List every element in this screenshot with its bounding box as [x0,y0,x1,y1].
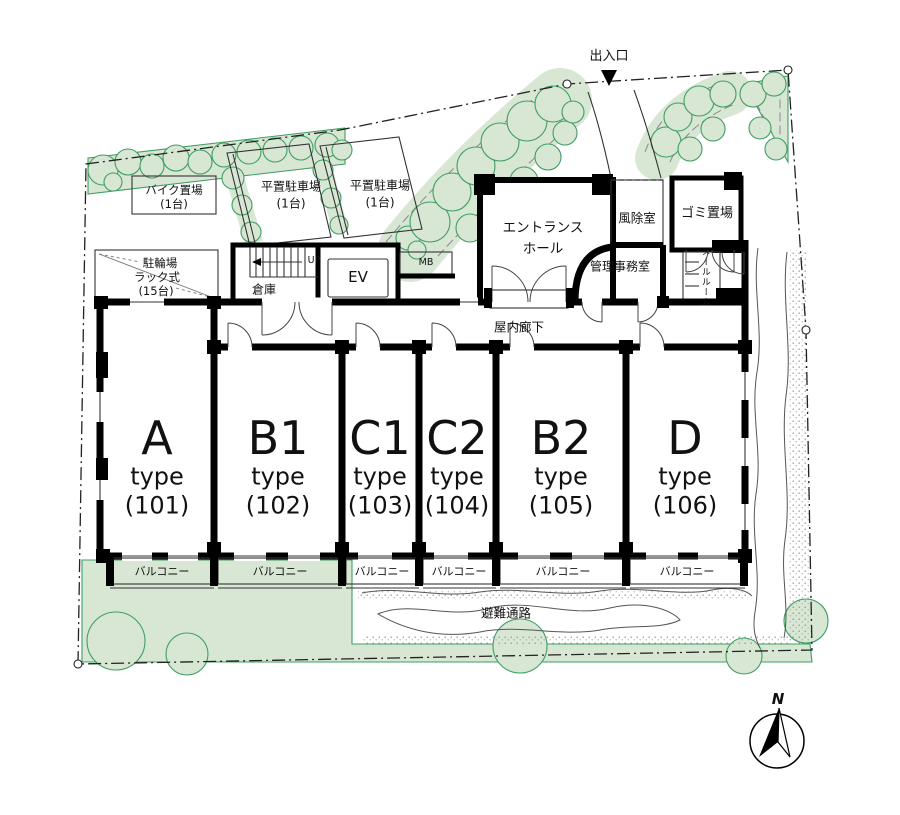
unit-a-type: type [130,464,184,489]
entrance-hall-label: エントランス [503,221,584,235]
parking-right-label: 平置駐車場 [350,180,410,193]
bike-storage-label: バイク置場 [145,184,202,196]
balcony-label-d: バルコニー [660,566,715,578]
entrance-hall-label2: ホール [523,242,564,256]
elevator-label: EV [348,270,368,286]
windbreak-label: 風除室 [618,211,656,224]
balcony-label-c1: バルコニー [355,566,410,578]
bicycle-parking-type: ラック式 [134,271,180,283]
garbage-label: ゴミ置場 [681,207,733,221]
unit-a-number: (101) [125,493,190,518]
mailbox-label: MB [419,258,434,268]
compass-north-label: N [772,692,785,708]
compass [750,708,804,768]
bike-storage-count: (1台) [160,198,188,210]
corridor-label: 屋内廊下 [494,320,544,333]
balcony-label-a: バルコニー [135,566,190,578]
entrance-marker-icon [601,70,617,86]
unit-c2-name: C2 [426,414,487,462]
office-label: 管理事務室 [590,261,650,274]
entrance-label: 出入口 [589,50,628,64]
unit-b1-number: (102) [246,493,311,518]
unit-d-number: (106) [653,493,718,518]
bicycle-parking-count: (15台) [138,285,173,297]
unit-b1-type: type [251,464,305,489]
parking-right-count: (1台) [366,197,395,210]
unit-b2-number: (105) [529,493,594,518]
stairs-up-label: UP [308,256,321,266]
unit-a-name: A [141,414,172,462]
unit-d-name: D [667,414,702,462]
site-plan: 出入口 バイク置場 (1台) 平置駐車場 (1台) 平置駐車場 (1台) 駐輪場… [0,0,900,815]
evacuation-route-label: 避難通路 [481,606,531,619]
parking-left-count: (1台) [277,198,306,211]
mailroom-label: メールルーム [699,247,708,307]
bicycle-parking-label: 駐輪場 [143,257,178,269]
unit-b1-name: B1 [248,414,309,462]
unit-b2-name: B2 [531,414,592,462]
site-plan-graphic [0,0,900,815]
unit-d-type: type [658,464,712,489]
unit-c1-name: C1 [349,414,410,462]
unit-c1-type: type [353,464,407,489]
parking-left-label: 平置駐車場 [261,181,321,194]
unit-c2-type: type [430,464,484,489]
unit-b2-type: type [534,464,588,489]
unit-c1-number: (103) [348,493,413,518]
balcony-label-b1: バルコニー [253,566,308,578]
storage-label: 倉庫 [252,284,276,297]
unit-c2-number: (104) [425,493,490,518]
balcony-label-c2: バルコニー [432,566,487,578]
balcony-label-b2: バルコニー [536,566,591,578]
